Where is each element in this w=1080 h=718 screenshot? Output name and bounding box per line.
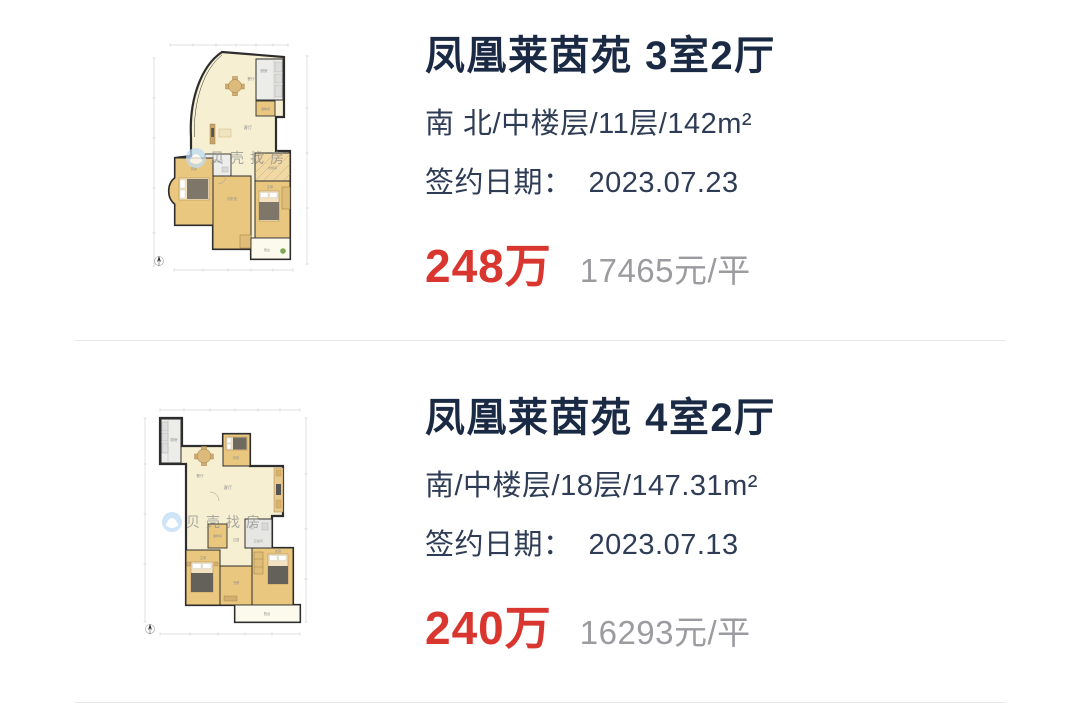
svg-text:厨房: 厨房 (170, 437, 178, 442)
room-kitchen: 厨房 (161, 419, 181, 463)
floorplan-svg-1: 厨房 储物间 餐厅 (148, 38, 313, 278)
price-row: 248万 17465元/平 (425, 230, 751, 296)
room-kitchen: 厨房 (256, 59, 283, 100)
compass-icon (146, 624, 155, 634)
floorplan-image-1[interactable]: 厨房 储物间 餐厅 (148, 38, 313, 278)
price-row: 240万 16293元/平 (425, 592, 751, 658)
svg-text:次卧室: 次卧室 (227, 196, 238, 201)
svg-text:贝壳找房: 贝壳找房 (210, 150, 290, 166)
room-balcony: 阳台 (235, 605, 300, 622)
transaction-listings-page: 厨房 储物间 餐厅 (0, 0, 1080, 718)
total-price: 248万 (425, 230, 552, 296)
svg-text:次卧: 次卧 (233, 455, 240, 460)
sign-date-value: 2023.07.23 (589, 167, 739, 199)
room-bedroom-right: 次卧 (252, 548, 293, 605)
listing-card-1[interactable]: 厨房 储物间 餐厅 (0, 0, 1080, 340)
listing-title: 凤凰莱茵苑 4室2厅 (425, 392, 776, 444)
card-divider (75, 340, 1006, 341)
listing-title: 凤凰莱茵苑 3室2厅 (425, 30, 776, 82)
svg-text:贝壳找房: 贝壳找房 (186, 514, 266, 530)
svg-text:厨房: 厨房 (260, 68, 268, 73)
svg-text:阳台: 阳台 (264, 247, 270, 252)
svg-text:储物间: 储物间 (261, 106, 270, 111)
card-divider (75, 702, 1006, 703)
svg-text:储物间: 储物间 (213, 533, 222, 538)
listing-info: 南/中楼层/18层/147.31m² (425, 466, 758, 506)
svg-text:卫生间: 卫生间 (253, 538, 262, 543)
svg-text:客厅: 客厅 (244, 124, 252, 131)
svg-text:阳台: 阳台 (264, 611, 270, 616)
sign-date-row: 签约日期：2023.07.23 (425, 163, 739, 203)
room-master: 主卧 (255, 181, 290, 238)
watermark-beike: 贝壳找房 (186, 148, 290, 168)
svg-text:书房: 书房 (233, 580, 240, 585)
room-master: 主卧 (186, 550, 220, 605)
total-price: 240万 (425, 592, 552, 658)
svg-text:餐厅: 餐厅 (247, 76, 255, 81)
watermark-beike: 贝壳找房 (162, 512, 266, 532)
room-bedroom-left: 次卧 (169, 158, 213, 225)
svg-text:主卧: 主卧 (267, 184, 274, 189)
room-bedroom-top: 次卧 (223, 434, 250, 466)
room-balcony: 阳台 (251, 238, 290, 259)
listing-info: 南 北/中楼层/11层/142m² (425, 104, 752, 144)
listing-card-2[interactable]: 厨房 餐厅 次卧 (0, 362, 1080, 702)
floorplan-image-2[interactable]: 厨房 餐厅 次卧 (140, 404, 312, 644)
floorplan-svg-2: 厨房 餐厅 次卧 (140, 404, 312, 644)
room-storage: 储物间 (256, 101, 275, 116)
sign-date-value: 2023.07.13 (589, 529, 739, 561)
room-bedroom-mid: 次卧室 (213, 176, 251, 249)
svg-text:主卧: 主卧 (200, 555, 207, 560)
svg-text:餐厅: 餐厅 (196, 473, 204, 478)
unit-price: 16293元/平 (580, 606, 751, 654)
room-hall-label: 过道 (233, 537, 240, 542)
compass-icon (155, 256, 164, 266)
svg-text:次卧: 次卧 (275, 549, 282, 554)
unit-price: 17465元/平 (580, 244, 751, 292)
svg-text:客厅: 客厅 (224, 484, 232, 491)
sign-date-label: 签约日期： (425, 529, 573, 561)
room-study: 书房 (220, 566, 252, 605)
sign-date-label: 签约日期： (425, 167, 573, 199)
sign-date-row: 签约日期：2023.07.13 (425, 525, 739, 565)
